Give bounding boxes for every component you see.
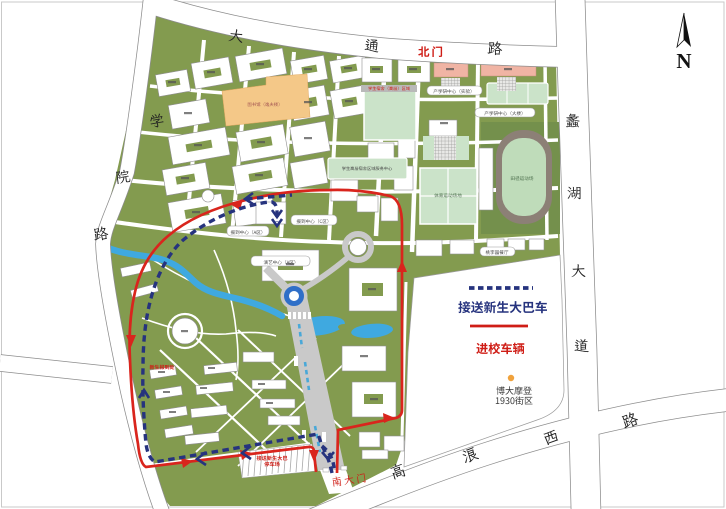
svg-text:N: N	[676, 49, 691, 73]
